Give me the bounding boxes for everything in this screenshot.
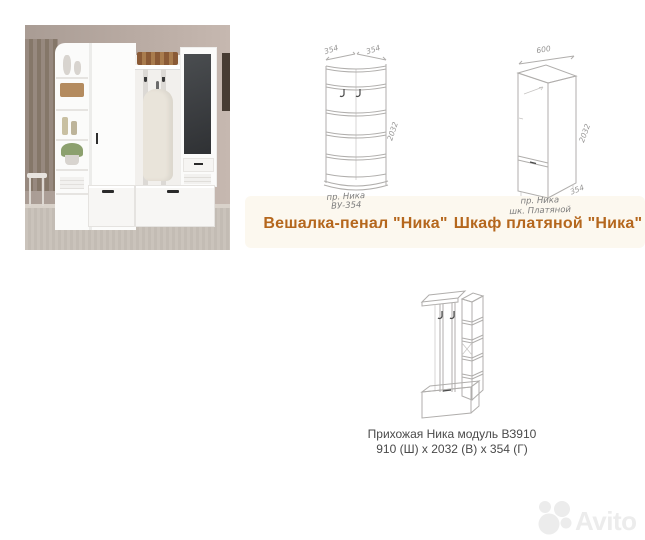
wardrobe-side-face <box>548 76 576 198</box>
avito-logo-icon <box>539 514 560 535</box>
photo-wardrobe-handle <box>96 133 98 144</box>
photo-towels <box>60 177 84 189</box>
photo-shelf-line <box>56 77 88 79</box>
module-column-diagonal-detail <box>462 343 472 355</box>
photo-shelf-line <box>56 193 88 195</box>
photo-stool-leg <box>29 178 31 206</box>
photo-plant-pot <box>65 155 79 165</box>
photo-coat-hook <box>144 77 147 82</box>
photo-wicker-baskets <box>137 52 178 65</box>
photo-mirror-drawer <box>183 158 214 172</box>
penal-dim-width-left: 354 <box>323 43 340 56</box>
wardrobe-drawer-line <box>518 156 548 167</box>
wardrobe-technical-drawing: 600 2032 354 пр. Ника шк. Платяной <box>486 42 616 222</box>
photo-towels <box>184 174 211 184</box>
avito-logo-icon <box>539 501 551 513</box>
photo-vase <box>63 55 71 75</box>
hallway-furniture-photo <box>25 25 230 250</box>
photo-mirror <box>184 54 211 154</box>
avito-logo-icon <box>554 501 570 517</box>
avito-watermark-text: Avito <box>575 506 637 536</box>
photo-shelf-line <box>56 139 88 141</box>
wardrobe-dim-width: 600 <box>536 44 552 55</box>
wardrobe-dimension-line <box>519 56 574 64</box>
penal-dim-width-right: 354 <box>365 43 382 56</box>
penal-label-line2: ВУ-354 <box>331 200 362 210</box>
avito-logo-icon <box>561 518 572 529</box>
wardrobe-caption: Шкаф платяной "Ника" <box>448 215 645 233</box>
wardrobe-hanging-rod <box>524 87 543 94</box>
photo-curtain <box>25 39 58 191</box>
wardrobe-dim-depth: 354 <box>569 183 586 197</box>
photo-stool-leg <box>42 178 44 206</box>
photo-vase <box>74 61 81 75</box>
penal-dim-height: 2032 <box>385 121 400 142</box>
photo-wall-corner-shadow <box>222 53 230 111</box>
penal-base <box>324 181 388 190</box>
photo-shelf-line <box>56 109 88 111</box>
module-top-shelf <box>422 291 465 306</box>
wardrobe-door-handle <box>519 118 523 119</box>
penal-dimension-arrows <box>326 52 386 60</box>
photo-coat-rack-section <box>135 55 180 185</box>
photo-drawer-handle <box>167 190 179 193</box>
module-technical-drawing <box>395 282 550 430</box>
wardrobe-top-face <box>518 65 576 83</box>
photo-drawer-handle <box>102 190 114 193</box>
photo-coat-hook <box>162 77 165 82</box>
wardrobe-dim-height: 2032 <box>577 122 592 143</box>
wardrobe-front-face <box>518 73 548 198</box>
photo-robe <box>143 89 173 181</box>
photo-bottle <box>71 121 77 135</box>
avito-watermark: Avito <box>528 496 645 538</box>
photo-mirror-unit <box>180 47 217 187</box>
photo-corner-shelf-unit <box>55 43 91 230</box>
photo-top-shelf <box>135 65 180 69</box>
penal-technical-drawing: 354 354 2032 пр. Ника ВУ-354 <box>296 42 416 210</box>
module-caption: Прихожая Ника модуль ВЗ910 910 (Ш) x 203… <box>352 427 552 457</box>
penal-hook-icon <box>340 89 344 97</box>
photo-shelf-line <box>56 169 88 171</box>
module-caption-line1: Прихожая Ника модуль ВЗ910 <box>352 427 552 442</box>
penal-dimension-line <box>326 54 386 60</box>
module-caption-line2: 910 (Ш) x 2032 (В) x 354 (Г) <box>352 442 552 457</box>
penal-caption: Вешалка-пенал "Ника" <box>258 215 453 233</box>
photo-mirror-drawer-handle <box>194 163 203 165</box>
module-bench-front <box>422 387 471 418</box>
photo-basket <box>60 83 84 97</box>
photo-bottle <box>62 117 68 135</box>
